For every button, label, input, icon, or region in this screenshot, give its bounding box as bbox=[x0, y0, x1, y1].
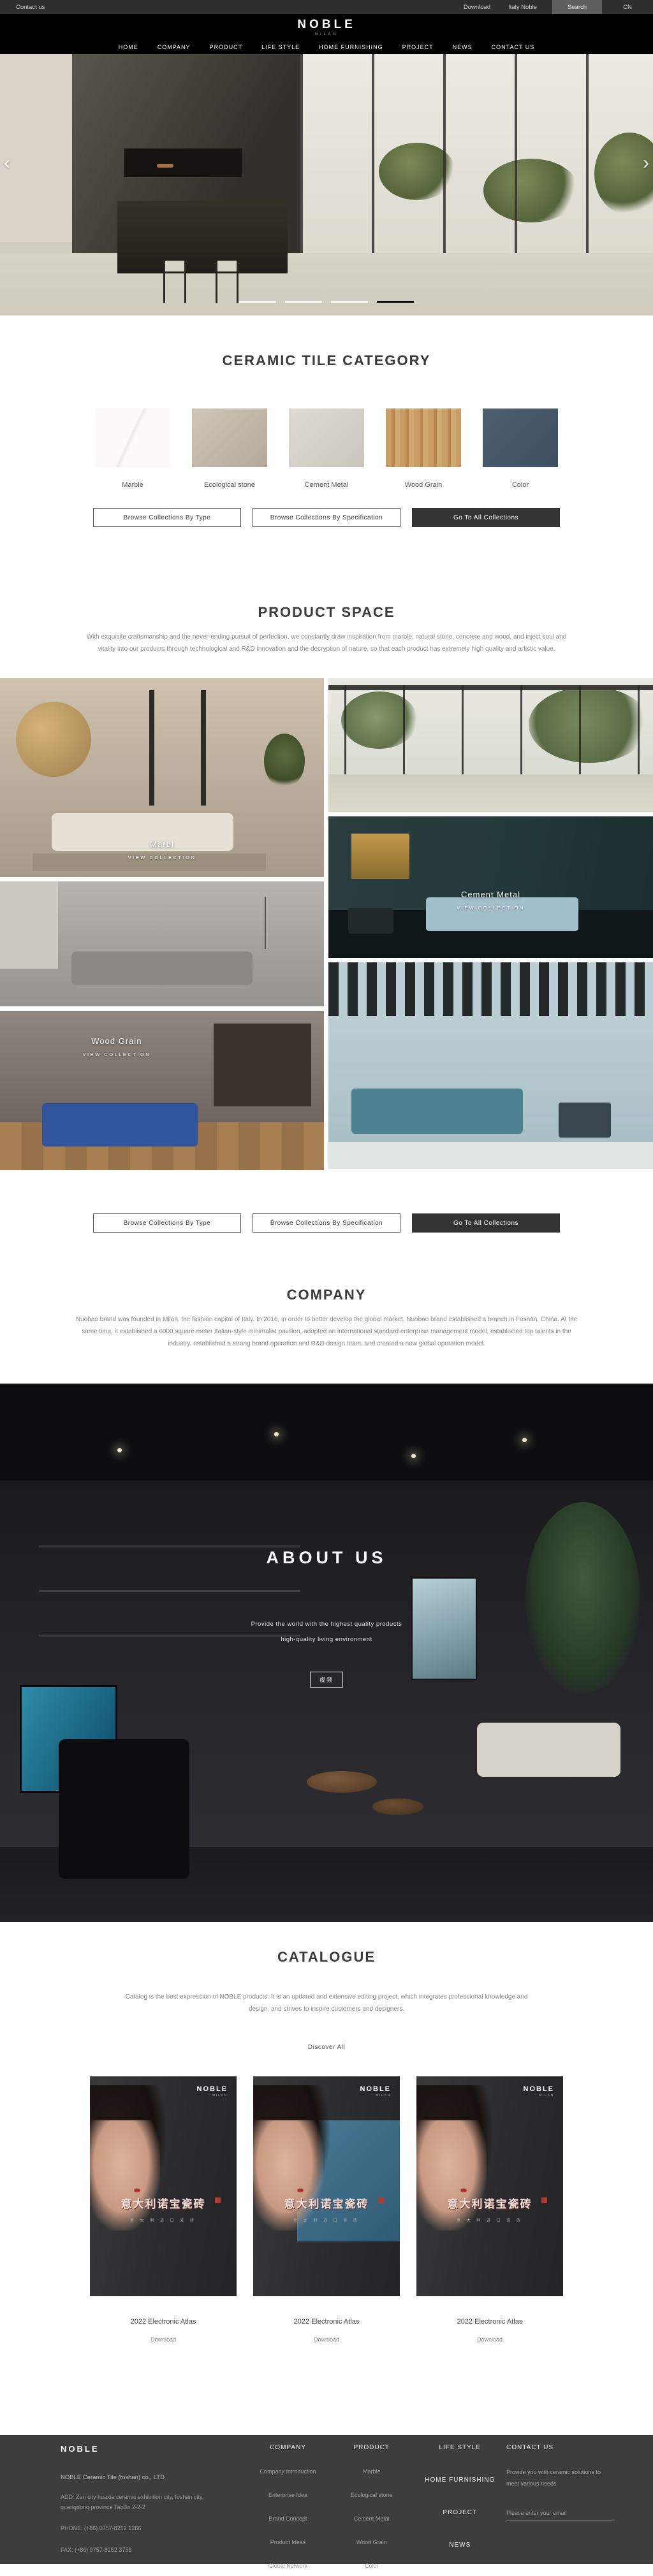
about-photo-coffee-table bbox=[307, 1771, 377, 1793]
about-video-button[interactable]: 视频 bbox=[310, 1672, 343, 1688]
atlas-name: 2022 Electronic Atlas bbox=[90, 2318, 237, 2326]
footer-contact-text: Provide you with ceramic solutions to me… bbox=[506, 2466, 608, 2489]
section-about-us: ABOUT US Provide the world with the high… bbox=[0, 1384, 653, 1922]
marble-card-overlay: Marbl VIEW COLLECTION bbox=[0, 839, 324, 860]
atlas-name: 2022 Electronic Atlas bbox=[416, 2318, 563, 2326]
grid-right-column: Cement Metal VIEW COLLECTION bbox=[328, 678, 653, 1170]
cover-chinese-subtitle: 意 大 利 进 口 瓷 砖 bbox=[90, 2217, 237, 2223]
catalogue-captions: 2022 Electronic Atlas Download 2022 Elec… bbox=[0, 2318, 653, 2343]
carousel-prev-icon[interactable]: ‹ bbox=[4, 154, 10, 173]
footer-column-company: COMPANY Company Introduction Enterprise … bbox=[246, 2444, 330, 2564]
cover-model-face bbox=[416, 2120, 487, 2231]
carousel-next-icon[interactable]: › bbox=[643, 154, 649, 173]
footer-link-ecological-stone[interactable]: Ecological stone bbox=[336, 2492, 407, 2498]
footer-link-cement-metal[interactable]: Cement Metal bbox=[336, 2515, 407, 2522]
category-item-wood-grain: Wood Grain bbox=[386, 409, 461, 489]
cement-metal-card-overlay: Cement Metal VIEW COLLECTION bbox=[328, 890, 653, 911]
about-us-line-2: high-quality living environment bbox=[0, 1636, 653, 1643]
about-photo-shelves bbox=[39, 1545, 300, 1547]
hero-photo-stool bbox=[163, 261, 186, 303]
card-decor-sofa bbox=[71, 952, 253, 985]
company-title: COMPANY bbox=[0, 1287, 653, 1303]
catalogue-cover-2[interactable]: NOBLE MILAN 意大利诺宝瓷砖 意 大 利 进 口 瓷 砖 bbox=[253, 2076, 400, 2296]
about-us-line-1: Provide the world with the highest quali… bbox=[0, 1621, 653, 1628]
about-photo-sofa bbox=[477, 1723, 620, 1777]
cover-red-seal bbox=[541, 2197, 547, 2203]
footer-info-block: NOBLE NOBLE Ceramic Tile (foshan) co., L… bbox=[61, 2444, 246, 2564]
company-paragraph: Nuobao brand was founded in Milan, the f… bbox=[71, 1313, 582, 1350]
catalogue-cover-3[interactable]: NOBLE MILAN 意大利诺宝瓷砖 意 大 利 进 口 瓷 砖 bbox=[416, 2076, 563, 2296]
product-space-paragraph: With exquisite craftsmanship and the nev… bbox=[78, 631, 575, 655]
atlas-name: 2022 Electronic Atlas bbox=[253, 2318, 400, 2326]
carousel-dash-1[interactable] bbox=[239, 301, 276, 303]
footer-address: ADD: Zen city huaxia ceramic exhibition … bbox=[61, 2492, 220, 2512]
cover-model-lips bbox=[460, 2189, 467, 2192]
cover-red-seal bbox=[215, 2197, 221, 2203]
topbar: Contact us Download Italy Noble Search C… bbox=[0, 0, 653, 14]
card-decor-window bbox=[0, 881, 58, 969]
about-photo-armchair bbox=[59, 1739, 189, 1879]
footer-link-global-network[interactable]: Global Network bbox=[246, 2563, 330, 2569]
card-decor-art-panel bbox=[351, 834, 410, 879]
about-us-title: ABOUT US bbox=[0, 1548, 653, 1568]
header: NOBLE MILAN HOME COMPANY PRODUCT LIFE ST… bbox=[0, 14, 653, 54]
about-photo-coffee-table bbox=[372, 1798, 423, 1815]
nav-life-style[interactable]: LIFE STYLE bbox=[252, 44, 309, 50]
carousel-dash-3[interactable] bbox=[331, 301, 368, 303]
cement-metal-label: Cement Metal bbox=[289, 481, 364, 489]
wood-grain-swatch[interactable] bbox=[386, 409, 461, 467]
footer-company-name: NOBLE Ceramic Tile (foshan) co., LTD bbox=[61, 2474, 246, 2481]
section-product-space: PRODUCT SPACE With exquisite craftsmansh… bbox=[0, 574, 653, 1269]
download-link[interactable]: Download bbox=[464, 4, 490, 11]
cover-logo-text: NOBLE bbox=[360, 2085, 392, 2093]
card-decor-chair bbox=[348, 908, 393, 934]
footer-contact-block: CONTACT US Provide you with ceramic solu… bbox=[506, 2444, 615, 2564]
atlas-download-link[interactable]: Download bbox=[416, 2336, 563, 2343]
catalogue-caption-2: 2022 Electronic Atlas Download bbox=[253, 2318, 400, 2343]
footer-link-enterprise-idea[interactable]: Enterprise Idea bbox=[246, 2492, 330, 2498]
footer-contact-header[interactable]: CONTACT US bbox=[506, 2444, 615, 2451]
footer: NOBLE NOBLE Ceramic Tile (foshan) co., L… bbox=[0, 2435, 653, 2564]
brand-logo[interactable]: NOBLE MILAN bbox=[0, 18, 653, 36]
cover-logo-text: NOBLE bbox=[197, 2085, 228, 2093]
nav-home[interactable]: HOME bbox=[109, 44, 148, 50]
nav-product[interactable]: PRODUCT bbox=[200, 44, 253, 50]
hero-carousel: ‹ › bbox=[0, 54, 653, 315]
product-space-buttons: Browse Collections By Type Browse Collec… bbox=[0, 1213, 653, 1233]
category-item-marble: Marble bbox=[95, 409, 170, 489]
hero-photo-fire bbox=[157, 164, 173, 168]
footer-link-color[interactable]: Color bbox=[336, 2563, 407, 2569]
cover-logo-subtext: MILAN bbox=[360, 2094, 392, 2097]
card-decor-plant bbox=[264, 734, 305, 788]
atlas-download-link[interactable]: Download bbox=[90, 2336, 237, 2343]
catalogue-caption-3: 2022 Electronic Atlas Download bbox=[416, 2318, 563, 2343]
footer-link-company-introduction[interactable]: Company Introduction bbox=[246, 2468, 330, 2475]
footer-link-product-ideas[interactable]: Product Ideas bbox=[246, 2539, 330, 2545]
hero-photo-island bbox=[117, 201, 287, 274]
cement-metal-swatch[interactable] bbox=[289, 409, 364, 467]
space-card-gray-room[interactable] bbox=[0, 881, 324, 1006]
nav-home-furnishing[interactable]: HOME FURNISHING bbox=[309, 44, 393, 50]
footer-link-wood-grain[interactable]: Wood Grain bbox=[336, 2539, 407, 2545]
nav-news[interactable]: NEWS bbox=[443, 44, 482, 50]
category-buttons: Browse Collections By Type Browse Collec… bbox=[0, 508, 653, 527]
footer-product-header[interactable]: PRODUCT bbox=[336, 2444, 407, 2451]
section-ceramic-tile-category: CERAMIC TILE CATEGORY Marble Ecological … bbox=[0, 315, 653, 574]
cement-metal-card-cta[interactable]: VIEW COLLECTION bbox=[328, 905, 653, 911]
wood-grain-card-label[interactable]: Wood Grain bbox=[0, 1036, 233, 1046]
category-item-cement-metal: Cement Metal bbox=[289, 409, 364, 489]
space-card-glass-house[interactable] bbox=[328, 678, 653, 812]
discover-all-link[interactable]: Discover All bbox=[308, 2044, 345, 2051]
about-photo-tree bbox=[525, 1502, 640, 1693]
color-label: Color bbox=[483, 481, 558, 489]
italy-noble-link[interactable]: Italy Noble bbox=[508, 4, 537, 11]
cover-red-seal bbox=[378, 2197, 384, 2203]
footer-column-nav: LIFE STYLE HOME FURNISHING PROJECT NEWS bbox=[414, 2444, 507, 2564]
hero-photo-fireplace bbox=[124, 148, 242, 177]
catalogue-paragraph: Catalog is the best expression of NOBLE … bbox=[122, 1991, 531, 2015]
cover-logo: NOBLE MILAN bbox=[524, 2085, 555, 2097]
carousel-pagination bbox=[0, 301, 653, 303]
cover-chinese-subtitle: 意 大 利 进 口 瓷 砖 bbox=[253, 2217, 400, 2223]
card-decor-slat-ceiling bbox=[328, 962, 653, 1016]
footer-fax: FAX: (+86) 0757-8252 3758 bbox=[61, 2545, 220, 2555]
cover-model-lips bbox=[297, 2189, 304, 2192]
carousel-dash-4-active[interactable] bbox=[377, 301, 414, 303]
footer-link-marble[interactable]: Marble bbox=[336, 2468, 407, 2475]
cover-model-face bbox=[253, 2120, 323, 2231]
about-photo-spotlight bbox=[411, 1454, 416, 1458]
ecological-stone-label: Ecological stone bbox=[192, 481, 267, 489]
category-title: CERAMIC TILE CATEGORY bbox=[0, 352, 653, 369]
cover-logo-subtext: MILAN bbox=[524, 2094, 555, 2097]
catalogue-caption-1: 2022 Electronic Atlas Download bbox=[90, 2318, 237, 2343]
card-decor-floor bbox=[328, 774, 653, 812]
email-input[interactable] bbox=[506, 2507, 615, 2521]
about-photo-display bbox=[411, 1577, 476, 1680]
card-decor-divider bbox=[201, 690, 206, 806]
space-card-wood-grain[interactable]: Wood Grain VIEW COLLECTION bbox=[0, 1011, 324, 1170]
category-item-color: Color bbox=[483, 409, 558, 489]
footer-company-header[interactable]: COMPANY bbox=[246, 2444, 330, 2451]
card-decor-lamp bbox=[265, 897, 266, 949]
nav-project[interactable]: PROJECT bbox=[393, 44, 443, 50]
footer-column-product: PRODUCT Marble Ecological stone Cement M… bbox=[336, 2444, 407, 2564]
nav-company[interactable]: COMPANY bbox=[148, 44, 200, 50]
card-decor-blue-sofa bbox=[42, 1103, 198, 1147]
main-nav: HOME COMPANY PRODUCT LIFE STYLE HOME FUR… bbox=[0, 44, 653, 50]
footer-link-project[interactable]: PROJECT bbox=[414, 2509, 507, 2516]
wood-grain-card-overlay: Wood Grain VIEW COLLECTION bbox=[0, 1036, 233, 1057]
space-card-cement-metal[interactable]: Cement Metal VIEW COLLECTION bbox=[328, 816, 653, 958]
discover-all-wrap: Discover All bbox=[0, 2044, 653, 2051]
hero-photo-window-frames bbox=[300, 54, 653, 263]
cover-logo: NOBLE MILAN bbox=[360, 2085, 392, 2097]
card-decor-teal-sofa bbox=[351, 1089, 524, 1134]
cover-logo-subtext: MILAN bbox=[197, 2094, 228, 2097]
footer-link-life-style[interactable]: LIFE STYLE bbox=[414, 2444, 507, 2451]
footer-logo[interactable]: NOBLE bbox=[61, 2444, 246, 2454]
category-item-ecological-stone: Ecological stone bbox=[192, 409, 267, 489]
cover-logo: NOBLE MILAN bbox=[197, 2085, 228, 2097]
space-card-marble[interactable]: Marbl VIEW COLLECTION bbox=[0, 678, 324, 877]
category-swatch-row: Marble Ecological stone Cement Metal Woo… bbox=[0, 409, 653, 489]
marble-card-cta[interactable]: VIEW COLLECTION bbox=[0, 855, 324, 860]
browse-by-spec-button[interactable]: Browse Collections By Specification bbox=[253, 508, 400, 527]
browse-by-type-button[interactable]: Browse Collections By Type bbox=[93, 508, 241, 527]
footer-link-news[interactable]: NEWS bbox=[414, 2542, 507, 2549]
cover-logo-text: NOBLE bbox=[524, 2085, 555, 2093]
brand-logo-text[interactable]: NOBLE bbox=[0, 18, 653, 32]
cover-model-face bbox=[90, 2120, 160, 2231]
card-decor-divider bbox=[149, 690, 154, 806]
ecological-stone-swatch[interactable] bbox=[192, 409, 267, 467]
product-space-title: PRODUCT SPACE bbox=[0, 604, 653, 621]
hero-photo-stool bbox=[216, 261, 238, 303]
all-collections-button-2[interactable]: Go To All Collections bbox=[412, 1213, 560, 1233]
section-catalogue: CATALOGUE Catalog is the best expression… bbox=[0, 1922, 653, 2435]
catalogue-title: CATALOGUE bbox=[0, 1949, 653, 1965]
cover-model-lips bbox=[134, 2189, 140, 2192]
marble-label: Marble bbox=[95, 481, 170, 489]
language-toggle[interactable]: CN bbox=[611, 4, 644, 11]
carousel-dash-2[interactable] bbox=[285, 301, 322, 303]
catalogue-cover-1[interactable]: NOBLE MILAN 意大利诺宝瓷砖 意 大 利 进 口 瓷 砖 bbox=[90, 2076, 237, 2296]
card-decor-gold-circle bbox=[16, 702, 91, 777]
color-swatch[interactable] bbox=[483, 409, 558, 467]
card-decor-window-frames bbox=[344, 685, 643, 775]
footer-phone: PHONE: (+86) 0757-8252 1266 bbox=[61, 2523, 220, 2533]
browse-by-spec-button-2[interactable]: Browse Collections By Specification bbox=[253, 1213, 400, 1233]
catalogue-covers: NOBLE MILAN 意大利诺宝瓷砖 意 大 利 进 口 瓷 砖 NOBLE … bbox=[0, 2076, 653, 2296]
section-company: COMPANY Nuobao brand was founded in Mila… bbox=[0, 1269, 653, 1384]
nav-contact-us[interactable]: CONTACT US bbox=[482, 44, 545, 50]
cover-chinese-subtitle: 意 大 利 进 口 瓷 砖 bbox=[416, 2217, 563, 2223]
space-card-lounge[interactable] bbox=[328, 962, 653, 1169]
grid-left-column: Marbl VIEW COLLECTION Wood Grain VIEW CO bbox=[0, 678, 324, 1170]
page: Contact us Download Italy Noble Search C… bbox=[0, 0, 653, 2576]
about-photo-ceiling bbox=[0, 1384, 653, 1480]
all-collections-button[interactable]: Go To All Collections bbox=[412, 508, 560, 527]
hero-photo-floor bbox=[0, 253, 653, 315]
brand-logo-subtext: MILAN bbox=[0, 33, 653, 36]
cement-metal-card-label[interactable]: Cement Metal bbox=[328, 890, 653, 899]
footer-link-brand-concept[interactable]: Brand Concept bbox=[246, 2515, 330, 2522]
contact-us-link[interactable]: Contact us bbox=[16, 4, 45, 11]
card-decor-floor bbox=[328, 1142, 653, 1169]
about-photo-spotlight bbox=[522, 1438, 527, 1442]
search-button[interactable]: Search bbox=[552, 0, 602, 14]
footer-link-home-furnishing[interactable]: HOME FURNISHING bbox=[414, 2477, 507, 2484]
card-decor-chair bbox=[559, 1103, 610, 1138]
marble-swatch[interactable] bbox=[95, 409, 170, 467]
browse-by-type-button-2[interactable]: Browse Collections By Type bbox=[93, 1213, 241, 1233]
marble-card-label[interactable]: Marbl bbox=[0, 839, 324, 849]
atlas-download-link[interactable]: Download bbox=[253, 2336, 400, 2343]
wood-grain-label: Wood Grain bbox=[386, 481, 461, 489]
wood-grain-card-cta[interactable]: VIEW COLLECTION bbox=[0, 1052, 233, 1057]
product-space-grid: Marbl VIEW COLLECTION Wood Grain VIEW CO bbox=[0, 678, 653, 1170]
